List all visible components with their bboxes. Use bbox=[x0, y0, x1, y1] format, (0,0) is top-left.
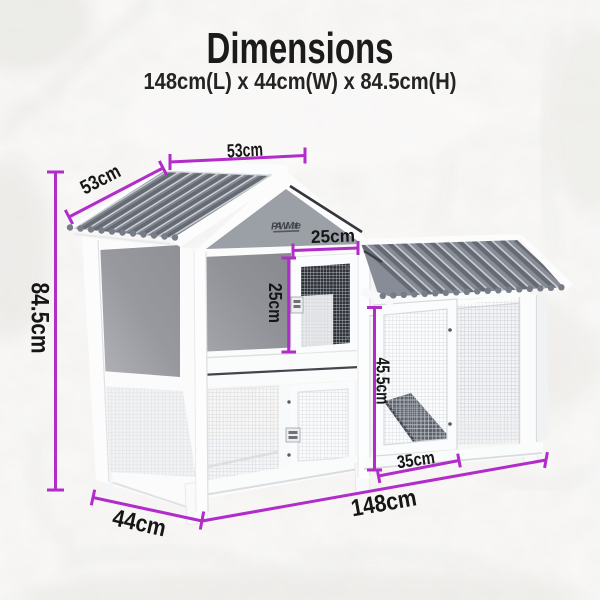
svg-text:45.5cm: 45.5cm bbox=[372, 358, 392, 405]
svg-text:25cm: 25cm bbox=[311, 225, 356, 247]
svg-text:84.5cm: 84.5cm bbox=[25, 283, 53, 354]
svg-text:25cm: 25cm bbox=[265, 283, 285, 323]
svg-text:148cm(L) x 44cm(W) x 84.5cm(H): 148cm(L) x 44cm(W) x 84.5cm(H) bbox=[144, 68, 457, 94]
svg-text:Dimensions: Dimensions bbox=[207, 24, 394, 73]
svg-text:53cm: 53cm bbox=[226, 140, 263, 163]
